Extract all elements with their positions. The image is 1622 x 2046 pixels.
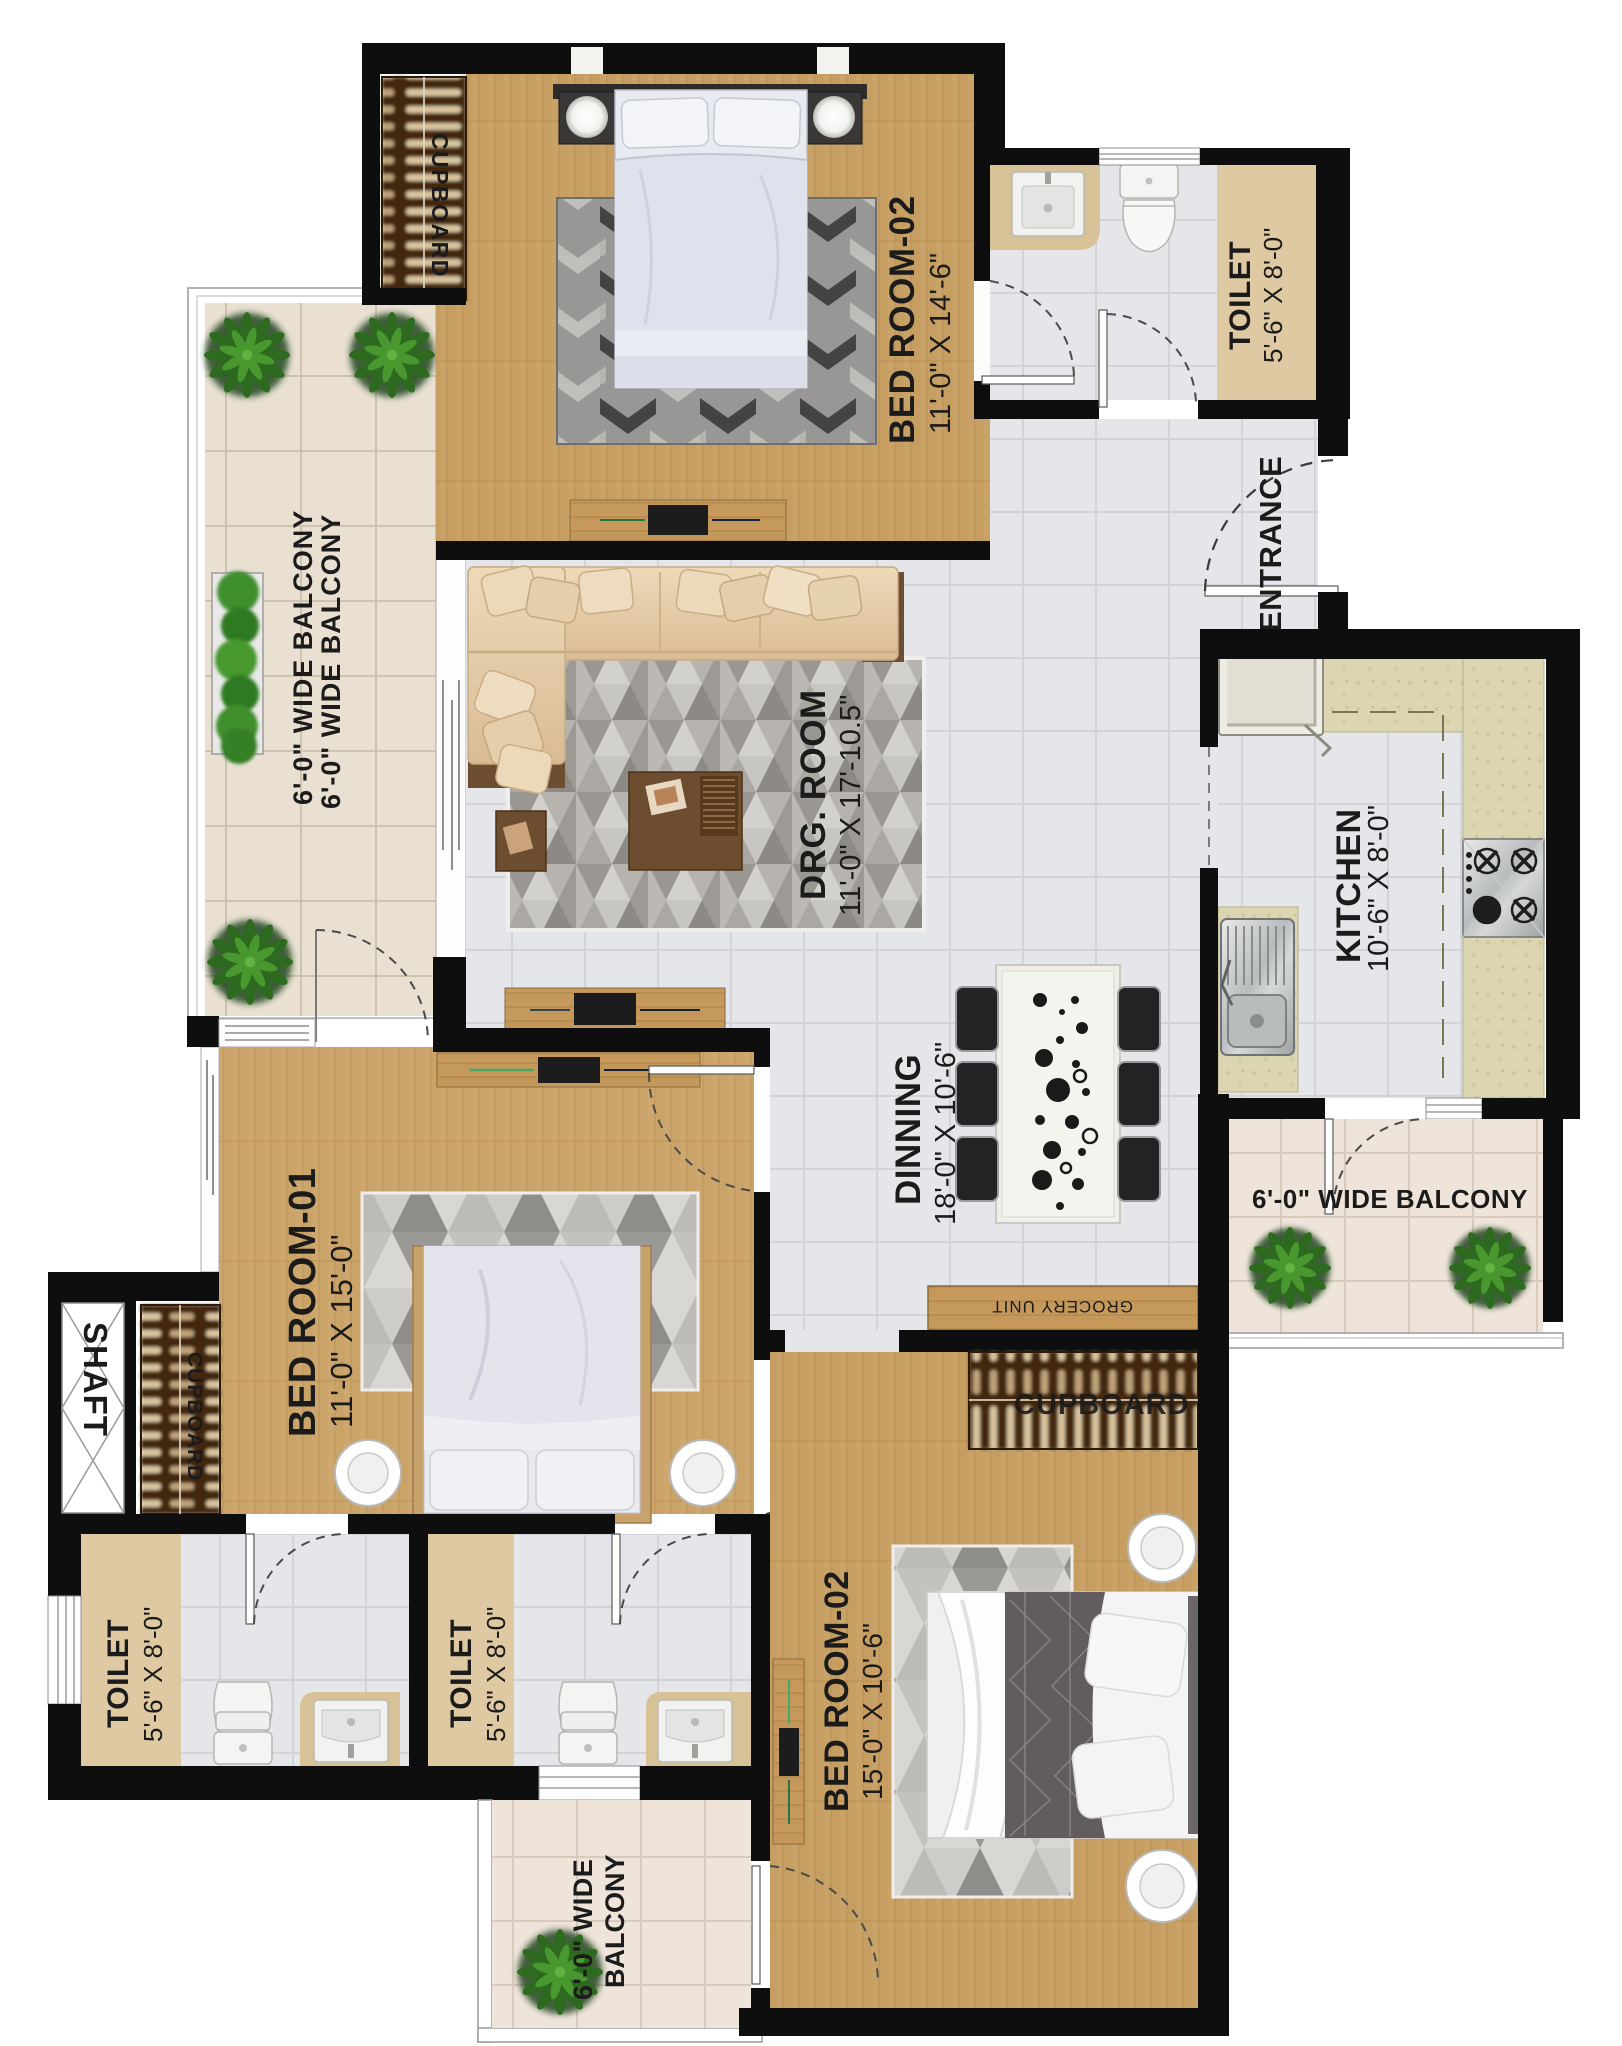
svg-text:BED ROOM-02: BED ROOM-02 — [883, 195, 922, 444]
svg-text:6'-0" WIDE BALCONY: 6'-0" WIDE BALCONY — [316, 514, 346, 809]
svg-text:5'-6" X 8'-0": 5'-6" X 8'-0" — [1258, 228, 1288, 363]
svg-text:DINNING: DINNING — [889, 1054, 928, 1205]
svg-text:CUPBOARD: CUPBOARD — [1014, 1389, 1190, 1421]
svg-text:BED ROOM-02: BED ROOM-02 — [818, 1570, 856, 1812]
svg-text:6'-0" WIDE BALCONY: 6'-0" WIDE BALCONY — [288, 510, 318, 805]
svg-text:11'-0" X 15'-0": 11'-0" X 15'-0" — [324, 1234, 359, 1428]
svg-text:ENTRANCE: ENTRANCE — [1253, 456, 1288, 632]
svg-text:5'-6" X 8'-0": 5'-6" X 8'-0" — [481, 1607, 511, 1742]
svg-text:6'-0" WIDE: 6'-0" WIDE — [568, 1859, 598, 2000]
svg-text:TOILET: TOILET — [102, 1619, 135, 1728]
svg-text:SHAFT: SHAFT — [77, 1322, 114, 1437]
svg-text:CUPBOARD: CUPBOARD — [427, 133, 453, 278]
svg-text:11'-0" X 14'-6": 11'-0" X 14'-6" — [925, 253, 957, 434]
svg-text:BALCONY: BALCONY — [600, 1855, 630, 1989]
svg-text:TOILET: TOILET — [1224, 241, 1257, 350]
svg-text:TOILET: TOILET — [445, 1619, 478, 1728]
svg-text:6'-0" WIDE BALCONY: 6'-0" WIDE BALCONY — [1252, 1184, 1528, 1214]
svg-text:GROCERY UNIT: GROCERY UNIT — [991, 1297, 1133, 1316]
svg-text:18'-0" X 10'-6": 18'-0" X 10'-6" — [930, 1042, 962, 1225]
svg-text:5'-6" X 8'-0": 5'-6" X 8'-0" — [138, 1607, 168, 1742]
svg-text:BED ROOM-01: BED ROOM-01 — [282, 1168, 324, 1437]
svg-text:DRG. ROOM: DRG. ROOM — [794, 689, 833, 900]
svg-text:11'-0" X 17'-10.5": 11'-0" X 17'-10.5" — [835, 695, 867, 916]
svg-text:CUPBOARD: CUPBOARD — [183, 1352, 206, 1481]
svg-text:10'-6" X 8'-0": 10'-6" X 8'-0" — [1363, 805, 1395, 972]
svg-text:15'-0" X 10'-6": 15'-0" X 10'-6" — [857, 1623, 888, 1800]
